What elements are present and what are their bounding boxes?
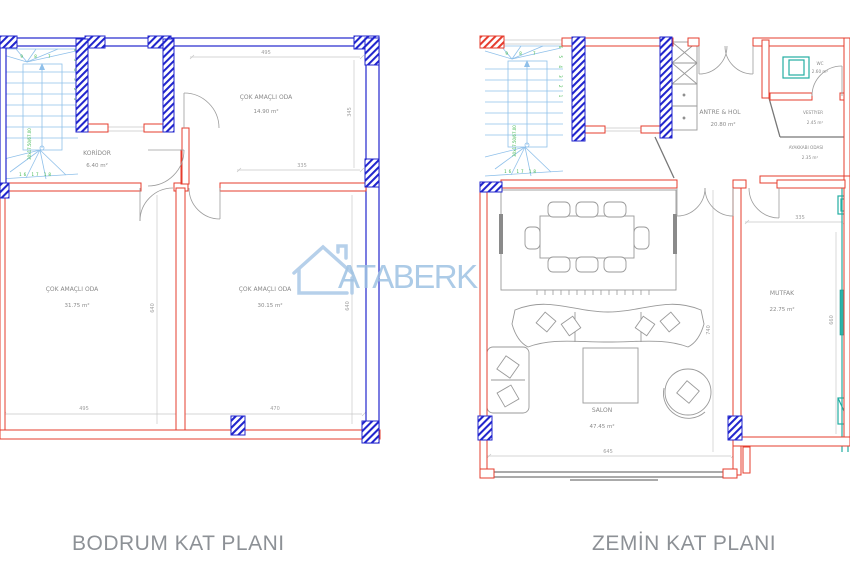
room-area-wc: 2.60 m² <box>812 69 829 74</box>
dim-ust-alt: 335 <box>297 163 307 169</box>
zemin-plan: ANTRE & HOL 20.80 m² VESTİYER 2.45 m² AY… <box>478 36 850 480</box>
room-area-vestiyer: 2.45 m² <box>807 120 824 125</box>
bodrum-plan-title: BODRUM KAT PLANI <box>72 532 285 556</box>
wc-fixture <box>783 57 809 78</box>
salon-furniture <box>487 202 711 418</box>
dim-ust-sag: 345 <box>347 107 353 117</box>
dim-sag-yuk: 640 <box>345 301 351 311</box>
dim-sol-yuk: 640 <box>150 303 156 313</box>
room-name-oda-sag: ÇOK AMAÇLI ODA <box>239 286 292 293</box>
room-area-mutfak: 22.75 m² <box>769 306 794 313</box>
sofa <box>512 304 704 347</box>
room-area-oda-sag: 30.15 m² <box>257 302 282 309</box>
bodrum-dimension-labels: 495 335 345 640 640 495 470 <box>79 50 353 412</box>
room-area-oda-sol: 31.75 m² <box>64 302 89 309</box>
room-name-oda-sol: ÇOK AMAÇLI ODA <box>46 286 99 293</box>
dim-alt-sol: 495 <box>79 406 89 412</box>
room-name-vestiyer: VESTİYER <box>803 110 823 115</box>
dining-table-set <box>525 202 649 272</box>
room-name-antre: ANTRE & HOL <box>699 109 741 116</box>
room-name-oda-ust: ÇOK AMAÇLI ODA <box>240 94 293 101</box>
bodrum-plan: KORİDOR 6.40 m² ÇOK AMAÇLI ODA 14.90 m² … <box>0 36 380 443</box>
watermark-brand-text: ATABERK <box>338 258 478 295</box>
watermark: ATABERK <box>294 246 478 295</box>
zemin-staircase <box>485 46 563 176</box>
bodrum-staircase <box>0 49 78 179</box>
dim-salon-yuk: 740 <box>706 325 712 335</box>
zemin-plan-title: ZEMİN KAT PLANI <box>592 532 776 556</box>
bodrum-walls <box>0 36 380 443</box>
coffee-table <box>583 348 638 403</box>
entry-closet <box>672 42 697 130</box>
zemin-partition-lines <box>492 98 848 480</box>
room-name-wc: WC <box>816 61 823 66</box>
dim-alt-sag: 470 <box>270 406 280 412</box>
room-area-antre: 20.80 m² <box>710 121 735 128</box>
dim-mutfak-yuk: 660 <box>829 315 835 325</box>
dim-ust: 495 <box>261 50 271 56</box>
dim-salon-alt: 645 <box>603 449 613 455</box>
room-name-ayakkabi: AYAKKABI ODASI <box>789 145 824 150</box>
round-chair <box>663 369 711 418</box>
room-area-salon: 47.45 m² <box>589 423 614 430</box>
room-name-koridor: KORİDOR <box>83 150 111 157</box>
floor-plan-page: 9 8 7 6 5 4 3 2 1 16 17 18 30x17.50/67.0… <box>0 0 850 566</box>
dim-mutfak-ust: 335 <box>795 215 805 221</box>
armchair <box>487 347 529 413</box>
room-area-ayakkabi: 2.35 m² <box>802 155 819 160</box>
room-area-oda-ust: 14.90 m² <box>253 108 278 115</box>
room-name-mutfak: MUTFAK <box>770 290 795 297</box>
floor-plan-drawing: 9 8 7 6 5 4 3 2 1 16 17 18 30x17.50/67.0… <box>0 0 850 566</box>
room-area-koridor: 6.40 m² <box>86 162 108 169</box>
room-name-salon: SALON <box>592 407 612 414</box>
